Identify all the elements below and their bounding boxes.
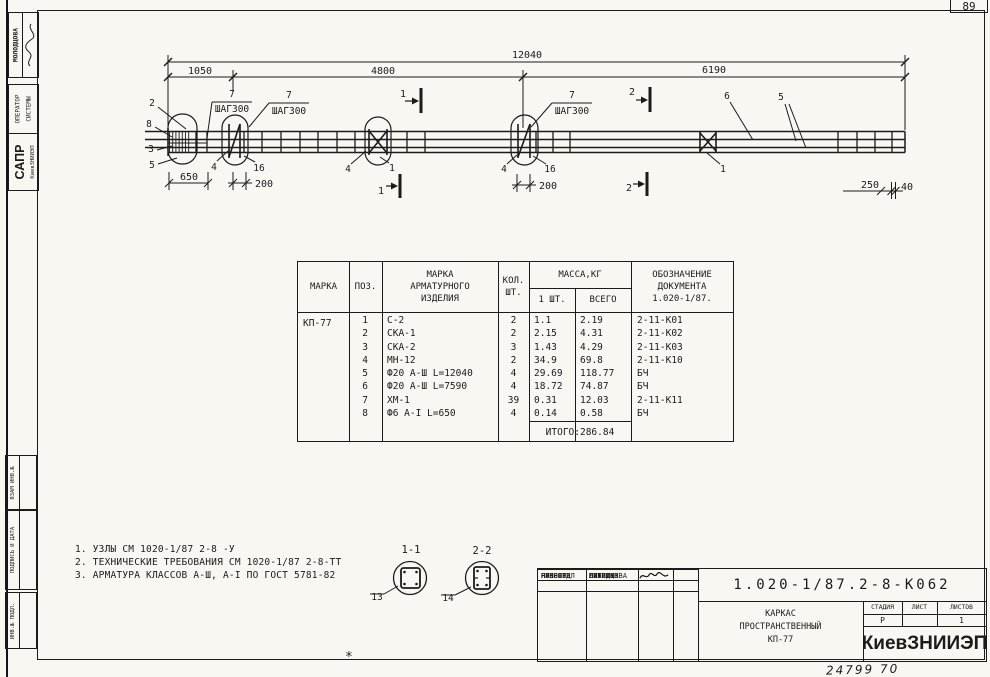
table-row: 7 ХМ-1 39 0.31 12.03 2-11-К11 (298, 394, 733, 407)
cell-poz: 4 (298, 354, 382, 367)
callout-pos5-left: 5 (149, 160, 155, 171)
drawing-sheet: 89 МОЛОДЦОВА ОПЕРАТОР СИСТЕМЫ САПР КиевЗ… (0, 0, 990, 677)
cell-poz: 5 (298, 367, 382, 380)
cell-mass-all: 2.19 (575, 314, 631, 327)
cell-doc: 2-11-К10 (631, 354, 733, 367)
cell-mass-all: 0.58 (575, 407, 631, 420)
header-poz: ПОЗ. (349, 262, 382, 312)
table-row: 6 Ф20 А-Ш L=7590 4 18.72 74.87 БЧ (298, 380, 733, 393)
cell-mass-all: 4.31 (575, 327, 631, 340)
cell-doc: 2-11-К01 (631, 314, 733, 327)
dim-total-label: 12040 (512, 50, 542, 61)
cell-mass-one: 29.69 (529, 367, 575, 380)
note-line: 3. АРМАТУРА КЛАССОВ А-Ш, А-I ПО ГОСТ 578… (75, 569, 341, 582)
table-row: 8 Ф6 А-I L=650 4 0.14 0.58 БЧ (298, 407, 733, 420)
cell-mass-one: 1.1 (529, 314, 575, 327)
callout-pos4-b: 4 (345, 164, 351, 175)
signature-row: РАЗРАБ. МОЛОДЦОВА (538, 569, 698, 582)
callout-pos16-b: 16 (544, 164, 556, 175)
section-2-2-detail (441, 562, 499, 596)
dim-40-label: 40 (901, 182, 913, 193)
step-text-2: ШАГ300 (272, 106, 307, 117)
cell-poz: 1 (298, 314, 382, 327)
stirrup-bars (196, 132, 892, 153)
registration-mark-icon: * (345, 650, 353, 665)
callout-pos3: 3 (148, 144, 154, 155)
callout-pos1-c: 1 (720, 164, 726, 175)
section-1-1-title: 1-1 (402, 544, 421, 556)
header-item: МАРКА АРМАТУРНОГО ИЗДЕЛИЯ (382, 262, 498, 312)
sheets-label: ЛИСТОВ (937, 601, 986, 613)
leader-lines (155, 102, 806, 164)
dim-seg2-label: 4800 (371, 66, 395, 77)
cell-qty: 2 (498, 327, 529, 340)
cell-mass-one: 2.15 (529, 327, 575, 340)
top-dimensions (164, 55, 909, 130)
header-marka: МАРКА (298, 262, 349, 312)
stage-value: Р (863, 614, 902, 626)
document-number: 1.020-1/87.2-8-К062 (698, 569, 986, 602)
cell-mass-all: 69.8 (575, 354, 631, 367)
cell-qty: 2 (498, 354, 529, 367)
sheet-label: ЛИСТ (902, 601, 937, 613)
cell-doc: 2-11-К02 (631, 327, 733, 340)
parts-rows: 1 С-2 2 1.1 2.19 2-11-К01 2 СКА-1 2 2.15… (298, 314, 733, 420)
cut2-top-label: 2 (629, 87, 635, 98)
cell-mass-all: 118.77 (575, 367, 631, 380)
cut1-top-label: 1 (400, 89, 406, 100)
cell-mass-one: 0.31 (529, 394, 575, 407)
cut2-bottom-label: 2 (626, 183, 632, 194)
dim-seg3-label: 6190 (702, 65, 726, 76)
callout-pos4-c: 4 (501, 164, 507, 175)
cell-qty: 4 (498, 407, 529, 420)
header-doc: ОБОЗНАЧЕНИЕ ДОКУМЕНТА 1.020-1/87. (631, 262, 733, 312)
cell-poz: 7 (298, 394, 382, 407)
step-num-3: 7 (569, 90, 575, 101)
cell-mass-all: 4.29 (575, 341, 631, 354)
header-mass-all: ВСЕГО (575, 288, 631, 312)
section-2-2-title: 2-2 (473, 545, 492, 557)
cell-item: Ф20 А-Ш L=7590 (382, 380, 498, 393)
cell-mass-all: 12.03 (575, 394, 631, 407)
beam-longitudinal-bars (145, 128, 905, 156)
parts-specification-table: МАРКА ПОЗ. МАРКА АРМАТУРНОГО ИЗДЕЛИЯ КОЛ… (297, 261, 734, 442)
signature-scribble (638, 571, 673, 581)
cell-qty: 39 (498, 394, 529, 407)
callout-pos13: 13 (371, 592, 382, 603)
cell-qty: 4 (498, 367, 529, 380)
header-mass-one: 1 ШТ. (529, 288, 575, 312)
cell-item: СКА-2 (382, 341, 498, 354)
sheets-value: 1 (937, 614, 986, 626)
sign-name: МОЛОДЦОВА (586, 572, 638, 580)
total-row: ИТОГО:286.84 (529, 421, 631, 442)
dim-seg1-label: 1050 (188, 66, 212, 77)
cell-doc: БЧ (631, 367, 733, 380)
note-line: 1. УЗЛЫ СМ 1020-1/87 2-8 -У (75, 543, 341, 556)
cell-item: СКА-1 (382, 327, 498, 340)
cell-poz: 3 (298, 341, 382, 354)
callout-pos14: 14 (442, 593, 454, 604)
table-row: 2 СКА-1 2 2.15 4.31 2-11-К02 (298, 327, 733, 340)
cell-poz: 6 (298, 380, 382, 393)
callout-pos1-b: 1 (389, 163, 395, 174)
cell-qty: 4 (498, 380, 529, 393)
organization-name: КиевЗНИИЭП (863, 626, 986, 661)
cell-doc: 2-11-К03 (631, 341, 733, 354)
sheet-value (902, 614, 937, 626)
dimension-ticks (164, 58, 909, 81)
table-row: 1 С-2 2 1.1 2.19 2-11-К01 (298, 314, 733, 327)
callout-pos4-a: 4 (211, 162, 217, 173)
cell-poz: 8 (298, 407, 382, 420)
table-row: 4 МН-12 2 34.9 69.8 2-11-К10 (298, 354, 733, 367)
table-row: 5 Ф20 А-Ш L=12040 4 29.69 118.77 БЧ (298, 367, 733, 380)
section-1-1-detail (370, 562, 427, 595)
drawing-title: КАРКАС ПРОСТРАНСТВЕННЫЙ КП-77 (698, 601, 863, 661)
header-qty: КОЛ. ШТ. (498, 262, 529, 312)
bottom-dimensions (165, 172, 903, 199)
cut1-bottom-label: 1 (378, 186, 384, 197)
title-block: НАЧ ОТД ГОРОХОВ Н.КОНТР СИТНИК ГИП СИТНИ (537, 568, 987, 662)
step-text-1: ШАГ300 (215, 104, 250, 115)
cell-item: Ф20 А-Ш L=12040 (382, 367, 498, 380)
cell-mass-one: 18.72 (529, 380, 575, 393)
cell-item: С-2 (382, 314, 498, 327)
cell-doc: 2-11-К11 (631, 394, 733, 407)
sign-role: РАЗРАБ. (538, 572, 586, 580)
callout-pos2: 2 (149, 98, 155, 109)
cell-qty: 3 (498, 341, 529, 354)
dim-200b-label: 200 (539, 181, 557, 192)
cell-doc: БЧ (631, 407, 733, 420)
callout-pos6: 6 (724, 91, 730, 102)
cell-doc: БЧ (631, 380, 733, 393)
cell-item: ХМ-1 (382, 394, 498, 407)
dim-200a-label: 200 (255, 179, 273, 190)
cell-qty: 2 (498, 314, 529, 327)
header-mass: МАССА,КГ (529, 262, 631, 288)
step-text-3: ШАГ300 (555, 106, 590, 117)
table-row: 3 СКА-2 3 1.43 4.29 2-11-К03 (298, 341, 733, 354)
stage-label: СТАДИЯ (863, 601, 902, 613)
dim-250-label: 250 (861, 180, 879, 191)
callout-pos16-a: 16 (253, 163, 265, 174)
note-line: 2. ТЕХНИЧЕСКИЕ ТРЕБОВАНИЯ СМ 1020-1/87 2… (75, 556, 341, 569)
step-num-2: 7 (286, 90, 292, 101)
cell-item: МН-12 (382, 354, 498, 367)
plot-code-handwritten: 24799 70 (826, 660, 946, 677)
cell-item: Ф6 А-I L=650 (382, 407, 498, 420)
cell-mass-one: 0.14 (529, 407, 575, 420)
cell-mass-one: 1.43 (529, 341, 575, 354)
notes-list: 1. УЗЛЫ СМ 1020-1/87 2-8 -У2. ТЕХНИЧЕСКИ… (75, 543, 341, 582)
cell-mass-all: 74.87 (575, 380, 631, 393)
end-mesh-hatch (170, 132, 189, 152)
dim-650-label: 650 (180, 172, 198, 183)
callout-pos5-right: 5 (778, 92, 784, 103)
callout-pos8: 8 (146, 119, 152, 130)
cell-poz: 2 (298, 327, 382, 340)
step-num-1: 7 (229, 89, 235, 100)
cell-mass-one: 34.9 (529, 354, 575, 367)
